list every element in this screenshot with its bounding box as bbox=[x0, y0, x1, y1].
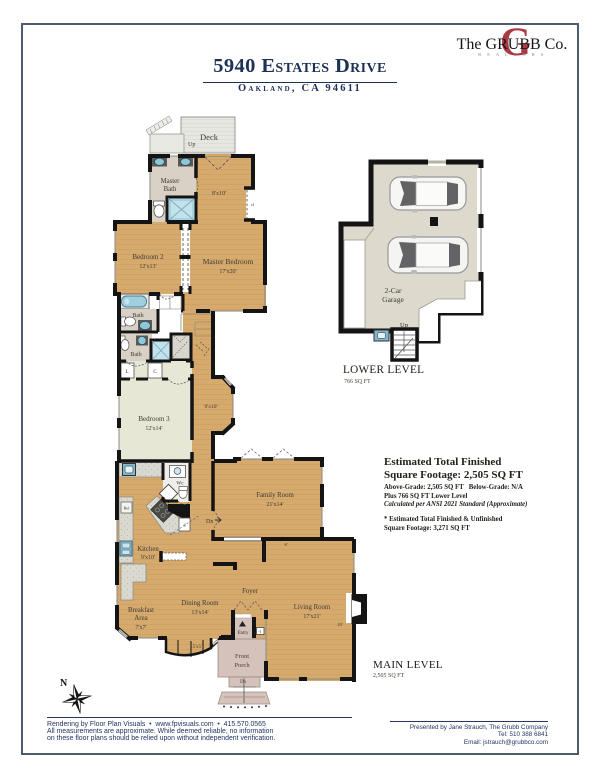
svg-text:Entry: Entry bbox=[237, 631, 249, 636]
svg-text:Bath: Bath bbox=[164, 186, 177, 193]
svg-text:L: L bbox=[125, 370, 128, 375]
svg-text:Up: Up bbox=[188, 142, 195, 148]
svg-text:9'x10': 9'x10' bbox=[141, 555, 155, 561]
svg-text:Area: Area bbox=[134, 615, 147, 622]
svg-text:20': 20' bbox=[337, 622, 343, 627]
svg-text:13'x14': 13'x14' bbox=[191, 610, 208, 616]
svg-text:8'x10': 8'x10' bbox=[212, 191, 226, 197]
svg-text:Dn: Dn bbox=[240, 680, 246, 685]
svg-text:17'x21': 17'x21' bbox=[303, 614, 320, 620]
svg-text:Up: Up bbox=[400, 322, 408, 329]
svg-text:Family Room: Family Room bbox=[256, 492, 294, 499]
svg-text:9'x10': 9'x10' bbox=[205, 404, 218, 410]
svg-text:Master Bedroom: Master Bedroom bbox=[203, 257, 254, 266]
svg-text:12'x14': 12'x14' bbox=[145, 426, 162, 432]
svg-text:Foyer: Foyer bbox=[242, 588, 259, 595]
svg-text:Dn: Dn bbox=[206, 519, 213, 525]
svg-text:17'x20': 17'x20' bbox=[219, 269, 236, 275]
svg-text:Bedroom 3: Bedroom 3 bbox=[138, 415, 170, 423]
svg-text:2-Car: 2-Car bbox=[384, 286, 402, 295]
svg-text:cl: cl bbox=[251, 202, 255, 207]
svg-text:6': 6' bbox=[284, 542, 287, 547]
svg-text:Deck: Deck bbox=[200, 132, 219, 142]
svg-text:Porch: Porch bbox=[234, 662, 250, 669]
svg-text:Dining Room: Dining Room bbox=[181, 600, 219, 607]
svg-text:Front: Front bbox=[235, 653, 249, 660]
svg-text:Wc: Wc bbox=[176, 481, 184, 487]
svg-text:Bath: Bath bbox=[130, 352, 141, 358]
svg-text:Garage: Garage bbox=[382, 295, 404, 304]
svg-text:15'x5': 15'x5' bbox=[190, 645, 202, 650]
svg-text:Living Room: Living Room bbox=[294, 604, 331, 611]
svg-text:Bedroom 2: Bedroom 2 bbox=[132, 253, 164, 261]
svg-text:Ref: Ref bbox=[123, 506, 130, 511]
svg-text:21'x14': 21'x14' bbox=[266, 502, 283, 508]
svg-text:Breakfast: Breakfast bbox=[128, 607, 154, 614]
svg-text:N: N bbox=[60, 678, 68, 689]
svg-text:7'x7': 7'x7' bbox=[135, 625, 146, 631]
svg-text:-1: -1 bbox=[258, 629, 262, 634]
svg-text:Master: Master bbox=[161, 178, 181, 185]
svg-text:12'x13': 12'x13' bbox=[139, 264, 156, 270]
svg-text:Kitchen: Kitchen bbox=[137, 546, 159, 553]
